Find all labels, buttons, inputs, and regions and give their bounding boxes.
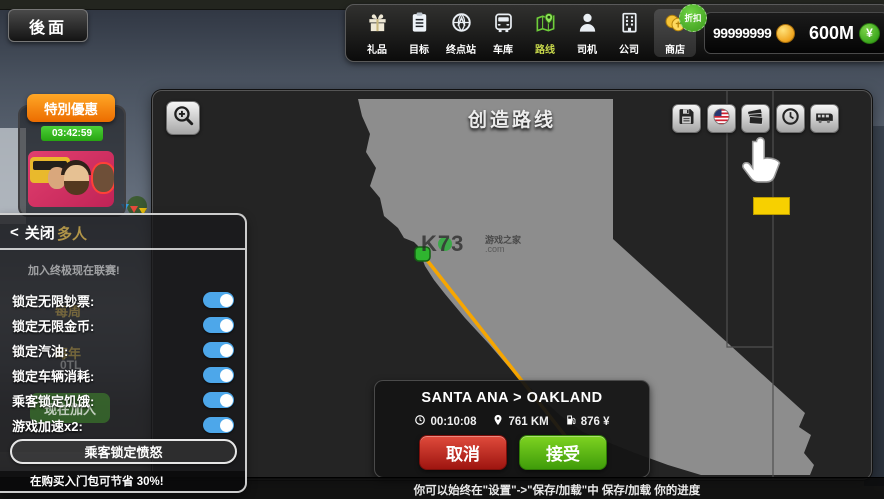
route-distance-value: 761 KM: [508, 416, 548, 428]
toggle-switch[interactable]: [203, 342, 234, 358]
floppy-disk-icon: [676, 106, 697, 132]
site-watermark: K73 游戏之家 .com: [421, 231, 561, 271]
game-screen: 後面 礼品 目标 终点站 车库 路线 司机 公司: [0, 0, 884, 499]
back-button[interactable]: 後面: [8, 9, 88, 42]
close-button[interactable]: < 关闭: [10, 222, 55, 243]
top-nav-bar: 礼品 目标 终点站 车库 路线 司机 公司 商店 折扣: [345, 4, 884, 62]
nav-label: 路线: [535, 41, 555, 56]
league-banner: 加入终极现在联赛!: [28, 262, 120, 278]
toggle-switch[interactable]: [203, 392, 234, 408]
toggle-knob: [220, 344, 233, 357]
discount-badge: 折扣: [679, 4, 707, 32]
panel-header: < 关闭 多人: [0, 215, 245, 250]
nav-item-goals[interactable]: 目标: [398, 11, 440, 56]
nav-label: 司机: [577, 41, 597, 56]
toggle-switch[interactable]: [203, 292, 234, 308]
route-map-panel: 创造路线 K73 游戏之家 .com S: [152, 90, 872, 480]
nav-label: 目标: [409, 41, 429, 56]
toggle-knob: [220, 369, 233, 382]
toggle-label: 乘客锁定饥饿:: [12, 391, 94, 410]
toggle-label: 锁定无限金币:: [12, 316, 94, 335]
gift-icon: [366, 11, 389, 39]
cash-amount: 600M: [809, 23, 854, 44]
bus-front-icon: [492, 11, 515, 39]
bus-select-button[interactable]: [810, 104, 839, 133]
route-stats: 00:10:08 761 KM 876 ¥: [375, 414, 649, 429]
nav-item-shop[interactable]: 商店 折扣: [654, 9, 696, 57]
character-beard: [64, 181, 89, 195]
gold-coin-icon: [776, 24, 795, 43]
save-load-hint: 你可以始终在"设置"->"保存/加载"中 保存/加载 你的进度: [240, 482, 874, 498]
globe-icon: [450, 11, 473, 39]
clock-icon: [780, 106, 801, 132]
toggle-row-unlimited-cash: 锁定无限钞票:: [0, 291, 245, 309]
route-time-value: 00:10:08: [430, 416, 476, 428]
special-offer-title: 特別優惠: [27, 94, 115, 122]
magnifier-icon: [171, 103, 196, 133]
toggle-row-unlimited-gold: 锁定无限金币:: [0, 316, 245, 334]
toggle-row-vehicle-wear: 锁定车辆消耗:: [0, 366, 245, 384]
driver-icon: [576, 11, 599, 39]
chevron-left-icon: <: [10, 224, 19, 241]
special-offer-card[interactable]: 特別優惠 03:42:59: [18, 105, 126, 217]
route-fuel-value: 876 ¥: [581, 416, 610, 428]
character-face: [91, 162, 114, 194]
clipboard-icon: [408, 11, 431, 39]
watermark-logo: K73: [421, 231, 464, 257]
toggle-label: 锁定车辆消耗:: [12, 366, 94, 385]
nav-label: 车库: [493, 41, 513, 56]
watermark-domain: .com: [485, 244, 505, 254]
toggle-switch[interactable]: [203, 367, 234, 383]
toggle-row-fuel: 锁定汽油:: [0, 341, 245, 359]
map-pin-icon: [492, 414, 504, 429]
toggle-label: 锁定无限钞票:: [12, 291, 94, 310]
close-label: 关闭: [25, 222, 55, 243]
toggle-knob: [220, 319, 233, 332]
route-distance: 761 KM: [492, 414, 548, 429]
bunting-flag: [130, 206, 138, 213]
tickets-icon: [745, 106, 766, 132]
starter-pack-promo: 在购买入门包可节省 30%!: [0, 471, 245, 491]
toggle-knob: [220, 294, 233, 307]
nav-item-routes[interactable]: 路线: [524, 11, 566, 56]
nav-item-garage[interactable]: 车库: [482, 11, 524, 56]
route-info-card: SANTA ANA > OAKLAND 00:10:08 761 KM 876 …: [374, 380, 650, 478]
building-icon: [618, 11, 641, 39]
route-title: SANTA ANA > OAKLAND: [375, 390, 649, 406]
nav-item-company[interactable]: 公司: [608, 11, 650, 56]
map-highlight-marker[interactable]: [753, 197, 790, 215]
toggle-row-passenger-hunger: 乘客锁定饥饿:: [0, 391, 245, 409]
tickets-button[interactable]: [741, 104, 770, 133]
panel-title: 多人: [57, 223, 87, 244]
offer-countdown: 03:42:59: [41, 126, 103, 141]
accept-button[interactable]: 接受: [519, 435, 607, 470]
nav-label: 公司: [619, 41, 639, 56]
route-time: 00:10:08: [414, 414, 476, 429]
yen-coin-icon: ¥: [859, 23, 880, 44]
nav-label: 商店: [665, 41, 685, 56]
toggle-knob: [220, 394, 233, 407]
toggle-knob: [220, 419, 233, 432]
save-route-button[interactable]: [672, 104, 701, 133]
nav-item-gifts[interactable]: 礼品: [356, 11, 398, 56]
multiplayer-panel: < 关闭 多人 加入终极现在联赛! 每周 每年 0TL 现在加入 锁定无限钞票:…: [0, 213, 247, 493]
cancel-button[interactable]: 取消: [419, 435, 507, 470]
offer-artwork: [28, 151, 114, 207]
toggle-switch[interactable]: [203, 417, 234, 433]
fuel-pump-icon: [565, 414, 577, 429]
country-flag-button[interactable]: [707, 104, 736, 133]
passenger-anger-button[interactable]: 乘客锁定愤怒: [10, 439, 237, 464]
toggle-switch[interactable]: [203, 317, 234, 333]
nav-item-terminal[interactable]: 终点站: [440, 11, 482, 56]
bus-side-icon: [814, 106, 835, 132]
us-flag-icon: [711, 106, 732, 132]
zoom-in-button[interactable]: [166, 101, 200, 135]
route-map-icon: [534, 11, 557, 39]
coins-amount: 99999999: [713, 25, 771, 41]
toggle-label: 锁定汽油:: [12, 341, 68, 360]
route-fuel-cost: 876 ¥: [565, 414, 610, 429]
currency-panel: 99999999 600M ¥: [704, 12, 884, 54]
toggle-row-game-speed: 游戏加速x2:: [0, 416, 245, 434]
time-icon: [414, 414, 426, 429]
nav-item-drivers[interactable]: 司机: [566, 11, 608, 56]
nav-label: 礼品: [367, 41, 387, 56]
nav-label: 终点站: [446, 41, 476, 56]
history-button[interactable]: [776, 104, 805, 133]
toggle-label: 游戏加速x2:: [12, 416, 83, 435]
